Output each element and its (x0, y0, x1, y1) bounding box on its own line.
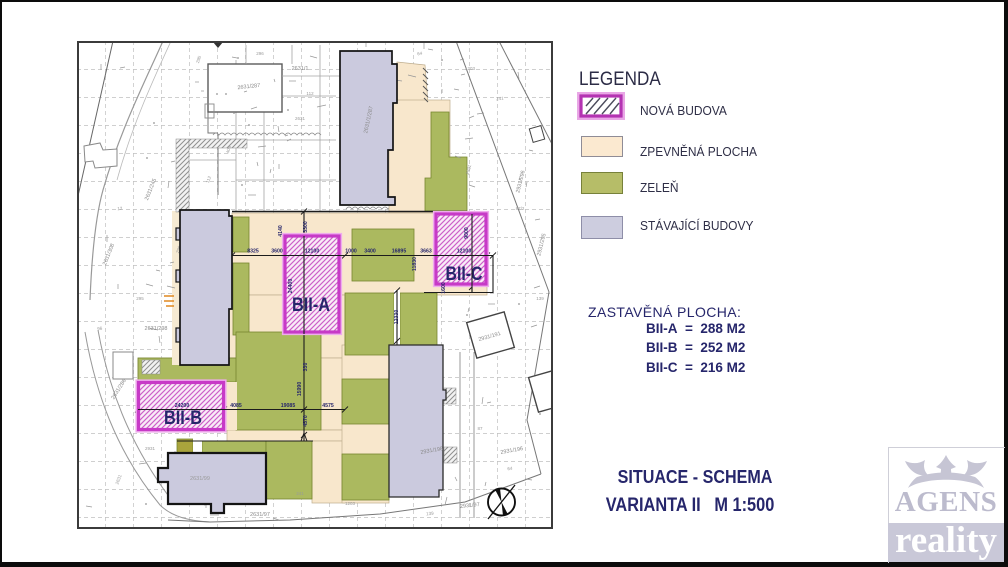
svg-text:4085: 4085 (230, 403, 242, 409)
svg-text:9000: 9000 (464, 227, 470, 239)
svg-text:3300: 3300 (303, 221, 309, 233)
svg-text:2931: 2931 (145, 446, 156, 451)
svg-text:12330: 12330 (394, 310, 400, 325)
svg-text:87: 87 (477, 426, 483, 431)
svg-text:3663: 3663 (420, 249, 432, 255)
svg-text:24200: 24200 (175, 403, 190, 409)
svg-text:4575: 4575 (322, 403, 334, 409)
svg-text:112: 112 (306, 91, 314, 96)
svg-text:12100: 12100 (457, 249, 472, 255)
svg-text:296: 296 (256, 51, 264, 56)
svg-text:3600: 3600 (271, 249, 283, 255)
svg-text:2631/1: 2631/1 (292, 66, 309, 72)
svg-text:11830: 11830 (412, 257, 418, 271)
svg-text:4140: 4140 (278, 225, 284, 237)
svg-text:4570: 4570 (303, 415, 309, 427)
svg-text:1203: 1203 (465, 66, 476, 71)
svg-text:24400: 24400 (288, 279, 294, 294)
svg-text:12: 12 (117, 206, 123, 211)
svg-text:16895: 16895 (392, 249, 407, 255)
svg-text:15990: 15990 (297, 382, 303, 397)
svg-text:BII-B: BII-B (164, 407, 202, 429)
svg-text:241: 241 (296, 491, 304, 496)
svg-text:3400: 3400 (364, 249, 376, 255)
svg-text:19085: 19085 (281, 403, 296, 409)
svg-text:12100: 12100 (305, 249, 320, 255)
svg-text:1203: 1203 (345, 501, 356, 506)
svg-text:139: 139 (426, 511, 434, 517)
svg-text:87/2: 87/2 (516, 206, 525, 211)
svg-text:139: 139 (536, 296, 544, 301)
svg-text:8325: 8325 (247, 249, 259, 255)
svg-text:2631/99: 2631/99 (190, 476, 210, 482)
svg-text:BII-C: BII-C (446, 264, 483, 285)
svg-text:1600: 1600 (441, 282, 447, 294)
svg-text:2631: 2631 (295, 116, 306, 121)
svg-text:2631/298: 2631/298 (145, 326, 168, 332)
svg-text:2631/97: 2631/97 (250, 512, 270, 518)
svg-text:295: 295 (136, 296, 144, 301)
svg-text:330: 330 (303, 363, 309, 372)
svg-text:241: 241 (496, 96, 504, 102)
svg-text:1000: 1000 (345, 249, 357, 255)
svg-text:BII-A: BII-A (292, 295, 330, 316)
svg-text:64: 64 (507, 466, 513, 471)
